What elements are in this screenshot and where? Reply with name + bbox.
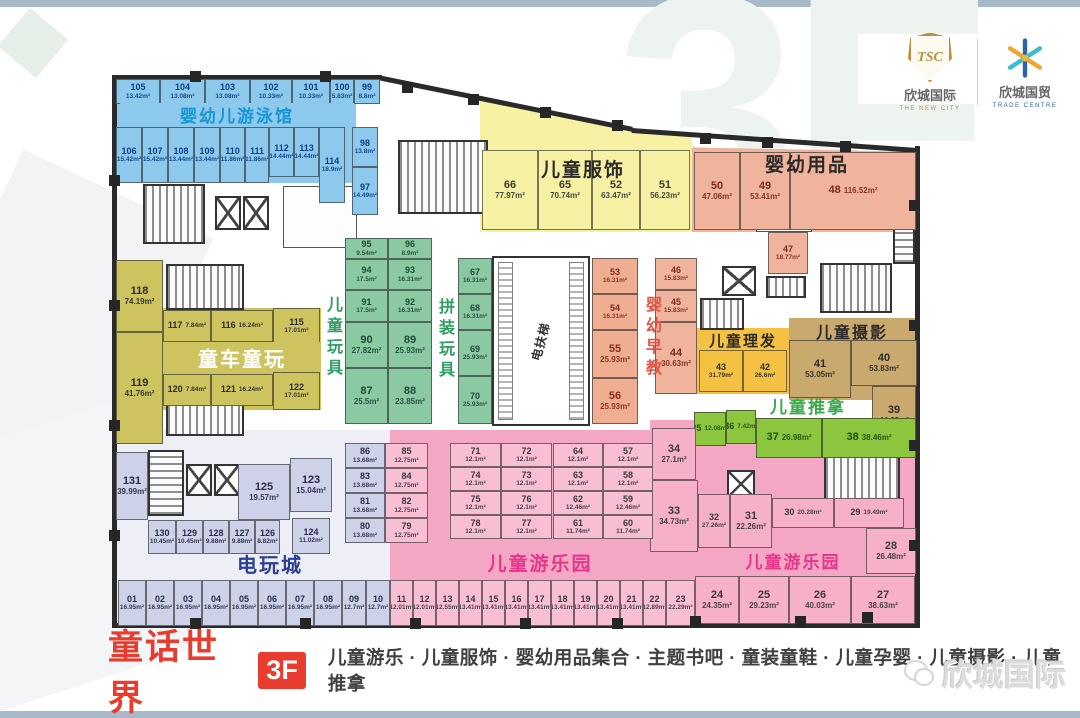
logo-left-name: 欣城国际: [904, 85, 956, 104]
structural-column: [795, 616, 806, 627]
wechat-icon: [904, 660, 934, 686]
structural-column: [320, 71, 331, 82]
unit-108: 10813.44m²: [168, 127, 194, 183]
unit-41: 4153.05m²: [789, 340, 851, 398]
unit-33: 3334.73m²: [650, 480, 698, 552]
structural-column: [109, 530, 120, 541]
unit-91: 9117.5m²: [345, 290, 388, 322]
logo-left-sub: THE NEW CITY: [900, 106, 961, 112]
zone-label: 拼装玩具: [433, 288, 455, 392]
unit-32: 3227.26m²: [698, 494, 730, 548]
unit-63: 6312.1m²: [553, 467, 603, 491]
unit-105: 10513.42m²: [116, 79, 160, 104]
unit-99: 998.8m²: [354, 79, 380, 104]
fixture-stairs: [148, 450, 184, 516]
unit-94: 9417.5m²: [345, 259, 388, 290]
unit-60: 6011.74m²: [603, 515, 653, 539]
shield-monogram: TSC: [917, 50, 943, 66]
unit-96: 968.9m²: [388, 238, 432, 259]
fixture-stairs: [143, 184, 205, 244]
fixture-stairs: [824, 455, 900, 503]
unit-09: 0912.7m²: [342, 580, 366, 626]
structural-column: [612, 618, 623, 629]
unit-87: 8725.5m²: [345, 368, 388, 424]
structural-column: [109, 300, 120, 311]
zone-label: 婴幼用品: [742, 150, 872, 176]
structural-column: [862, 612, 873, 623]
unit-10: 1012.7m²: [366, 580, 390, 626]
unit-81: 8113.68m²: [345, 493, 385, 518]
unit-80: 8013.68m²: [345, 518, 385, 543]
unit-77: 7712.1m²: [501, 515, 552, 539]
unit-28: 2826.48m²: [866, 528, 916, 574]
logo-xincheng-international: TSC 欣城国际 THE NEW CITY: [893, 33, 967, 112]
fixture-escalator: 电扶梯: [492, 256, 590, 426]
logo-xincheng-trade: 欣城国贸 TRADE CENTRE: [988, 36, 1062, 109]
unit-14: 1413.41m²: [459, 580, 482, 626]
structural-column: [402, 82, 413, 93]
zone-label: 婴幼早教: [640, 282, 662, 394]
logo-right-sub: TRADE CENTRE: [993, 103, 1058, 109]
structural-column: [909, 320, 920, 331]
unit-57: 5712.1m²: [603, 443, 653, 467]
unit-83: 8313.68m²: [345, 468, 385, 493]
unit-37: 3726.98m²: [756, 418, 822, 458]
floor-title: 童话世界: [108, 619, 252, 718]
unit-59: 5912.46m²: [603, 491, 653, 515]
zone-label: 儿童推拿: [750, 394, 866, 416]
fixture-stairs: [398, 140, 488, 214]
poster: 3F 电扶梯10513.42m²10413.08m²10313.08m²1021…: [0, 0, 1080, 718]
unit-89: 8925.93m²: [388, 322, 432, 368]
unit-76: 7612.1m²: [501, 491, 552, 515]
fixture-elevator: [722, 266, 756, 296]
unit-18: 1813.41m²: [551, 580, 574, 626]
structural-column: [540, 107, 551, 118]
unit-109: 10913.44m²: [194, 127, 220, 183]
unit-71: 7112.1m²: [450, 443, 501, 467]
zone-label: 儿童游乐园: [724, 548, 862, 572]
unit-62: 6212.46m²: [553, 491, 603, 515]
structural-column: [300, 618, 311, 629]
zone-label: 童车童玩: [163, 342, 321, 372]
unit-98: 9813.8m²: [352, 127, 378, 167]
unit-29: 2919.49m²: [834, 498, 904, 528]
unit-13: 1312.55m²: [436, 580, 459, 626]
structural-column: [612, 120, 623, 131]
unit-17: 1713.41m²: [528, 580, 551, 626]
unit-78: 7812.1m²: [450, 515, 501, 539]
unit-73: 7312.1m²: [501, 467, 552, 491]
unit-119: 11941.76m²: [116, 332, 163, 444]
unit-101: 10110.33m²: [292, 79, 330, 104]
unit-88: 8823.85m²: [388, 368, 432, 424]
unit-47: 4718.77m²: [768, 232, 808, 274]
logo-right-name: 欣城国贸: [999, 82, 1051, 101]
unit-24: 2424.35m²: [695, 576, 739, 624]
structural-column: [520, 618, 531, 629]
unit-38: 3838.46m²: [822, 418, 916, 458]
structural-column: [700, 133, 711, 144]
unit-06: 0616.95m²: [258, 580, 286, 626]
unit-104: 10413.08m²: [160, 79, 205, 104]
structural-column: [468, 94, 479, 105]
unit-102: 10210.33m²: [250, 79, 292, 104]
unit-58: 5812.1m²: [603, 467, 653, 491]
unit-43: 4331.79m²: [699, 350, 743, 392]
structural-column: [909, 440, 920, 451]
unit-85: 8512.75m²: [385, 443, 428, 468]
unit-25: 2529.23m²: [739, 576, 789, 624]
fixture-stairs: [166, 264, 244, 310]
unit-70: 7025.93m²: [458, 376, 492, 424]
unit-122: 12217.01m²: [273, 372, 320, 410]
header-logos: TSC 欣城国际 THE NEW CITY 欣城国贸 TRADE CENTRE: [893, 26, 1063, 118]
unit-64: 6412.1m²: [553, 443, 603, 467]
unit-55: 5525.93m²: [592, 330, 638, 378]
zone-label: 儿童玩具: [321, 288, 343, 388]
starburst-logo-icon: [1004, 36, 1046, 80]
fixture-elevator: [186, 464, 212, 496]
unit-125: 12519.57m²: [238, 464, 290, 520]
unit-34: 3427.1m²: [652, 428, 696, 480]
unit-35: 3512.08m²: [694, 412, 726, 446]
fixture-stairs: [766, 276, 806, 298]
unit-93: 9316.31m²: [388, 259, 432, 290]
unit-112: 11214.44m²: [269, 127, 294, 177]
structural-column: [109, 175, 120, 186]
unit-117: 1177.84m²: [163, 310, 211, 342]
structural-column: [410, 618, 421, 629]
structural-column: [190, 71, 201, 82]
zone-label: 儿童游乐园: [466, 549, 614, 575]
zone-label: 婴幼儿游泳馆: [120, 103, 354, 126]
zone-label: 儿童理发: [699, 330, 787, 350]
unit-27: 2738.63m²: [851, 576, 915, 624]
unit-61: 6111.74m²: [553, 515, 603, 539]
fixture-elevator: [214, 464, 240, 496]
unit-31: 3122.26m²: [730, 494, 772, 548]
unit-15: 1513.41m²: [482, 580, 505, 626]
structural-column: [909, 540, 920, 551]
unit-53: 5316.31m²: [592, 258, 638, 294]
unit-113: 11314.44m²: [294, 127, 319, 177]
unit-74: 7412.1m²: [450, 467, 501, 491]
unit-72: 7212.1m²: [501, 443, 552, 467]
unit-131: 13139.99m²: [116, 452, 148, 520]
unit-120: 1207.84m²: [163, 374, 211, 406]
unit-114: 11418.9m²: [319, 127, 345, 203]
unit-110: 11011.86m²: [220, 127, 245, 183]
unit-08: 0816.95m²: [314, 580, 342, 626]
unit-42: 4226.6m²: [743, 350, 787, 392]
unit-115: 11517.01m²: [273, 308, 320, 344]
unit-116: 11616.24m²: [211, 310, 273, 342]
unit-90: 9027.82m²: [345, 322, 388, 368]
unit-111: 11111.86m²: [245, 127, 269, 183]
shield-logo-icon: TSC: [908, 33, 952, 83]
zone-label: 儿童服饰: [518, 155, 648, 181]
unit-69: 6925.93m²: [458, 330, 492, 376]
logo-divider: [977, 39, 978, 105]
structural-column: [909, 200, 920, 211]
unit-121: 12116.24m²: [211, 374, 273, 406]
unit-82: 8212.75m²: [385, 493, 428, 518]
unit-95: 959.54m²: [345, 238, 388, 259]
unit-68: 6816.31m²: [458, 294, 492, 330]
fixture-stairs: [820, 263, 892, 313]
unit-79: 7912.75m²: [385, 518, 428, 543]
unit-40: 4053.83m²: [851, 340, 917, 386]
structural-column: [109, 420, 120, 431]
structural-column: [690, 616, 701, 627]
unit-97: 9714.49m²: [352, 167, 378, 215]
unit-19: 1913.41m²: [574, 580, 597, 626]
unit-118: 11874.19m²: [116, 260, 163, 332]
unit-103: 10313.08m²: [205, 79, 250, 104]
fixture-elevator: [243, 196, 269, 230]
unit-100: 1005.83m²: [330, 79, 354, 104]
unit-123: 12315.04m²: [290, 458, 332, 512]
unit-54: 5416.31m²: [592, 294, 638, 330]
brand-watermark: 欣城国际: [904, 650, 1066, 695]
unit-21: 2113.41m²: [620, 580, 643, 626]
brand-watermark-text: 欣城国际: [942, 650, 1066, 695]
unit-56: 5625.93m²: [592, 378, 638, 424]
fixture-stairs: [700, 298, 744, 330]
floor-badge: 3F: [258, 652, 306, 689]
unit-107: 10715.42m²: [142, 127, 168, 183]
unit-67: 6716.31m²: [458, 258, 492, 294]
unit-75: 7512.1m²: [450, 491, 501, 515]
unit-22: 2212.89m²: [643, 580, 666, 626]
unit-50: 5047.06m²: [694, 152, 740, 230]
zone-label: 儿童摄影: [797, 320, 907, 342]
zone-label: 电玩城: [160, 549, 380, 577]
unit-84: 8412.75m²: [385, 468, 428, 493]
unit-86: 8613.68m²: [345, 443, 385, 468]
unit-92: 9216.31m²: [388, 290, 432, 322]
unit-30: 3020.28m²: [772, 498, 834, 528]
structural-column: [762, 137, 773, 148]
fixture-elevator: [215, 196, 241, 230]
